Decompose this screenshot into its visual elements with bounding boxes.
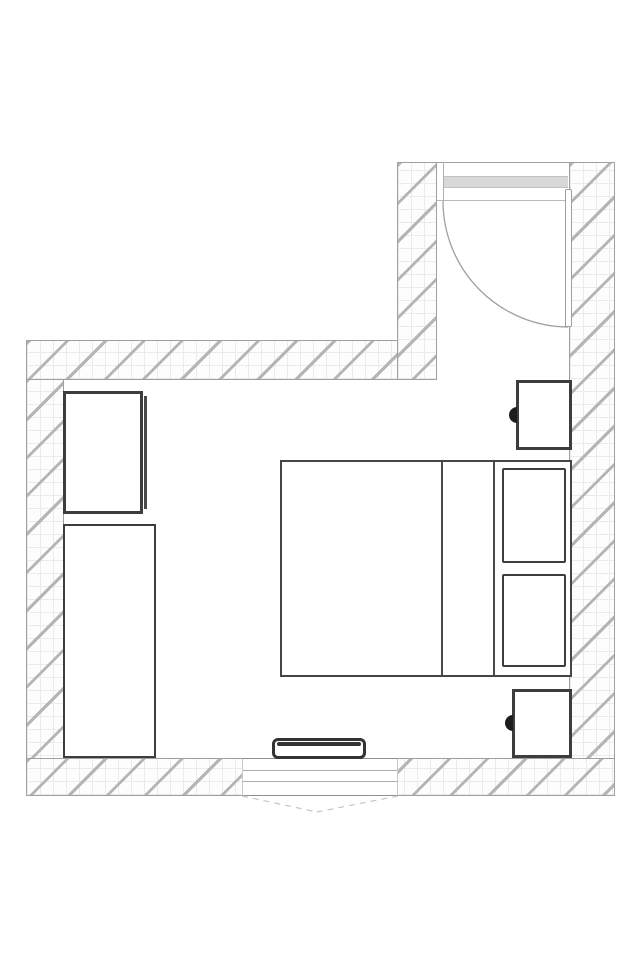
window-projection-dashes-icon	[242, 796, 398, 812]
wardrobe	[63, 391, 143, 514]
cabinet	[63, 524, 156, 758]
wardrobe-door-line	[144, 396, 147, 509]
wall-left	[26, 340, 64, 796]
wall-right	[569, 162, 615, 796]
window	[242, 758, 398, 796]
radiator-core	[277, 742, 361, 746]
nightstand-top	[516, 380, 572, 450]
pillow-bottom	[502, 574, 566, 667]
knob-icon	[505, 715, 513, 731]
window-glazing-line	[243, 781, 397, 782]
bed-fold-line	[441, 462, 443, 675]
wall-top-left	[26, 340, 437, 380]
wall-mid-vertical	[397, 162, 437, 380]
knob-icon	[509, 407, 517, 423]
bed-headboard-line	[493, 462, 495, 675]
door-leaf	[565, 189, 572, 327]
radiator	[272, 738, 366, 759]
nightstand-bottom	[512, 689, 572, 758]
window-glazing-line	[243, 770, 397, 771]
door-swing-arc-icon	[443, 201, 568, 327]
door-panel	[444, 176, 568, 188]
pillow-top	[502, 468, 566, 563]
floorplan-canvas	[0, 0, 640, 960]
